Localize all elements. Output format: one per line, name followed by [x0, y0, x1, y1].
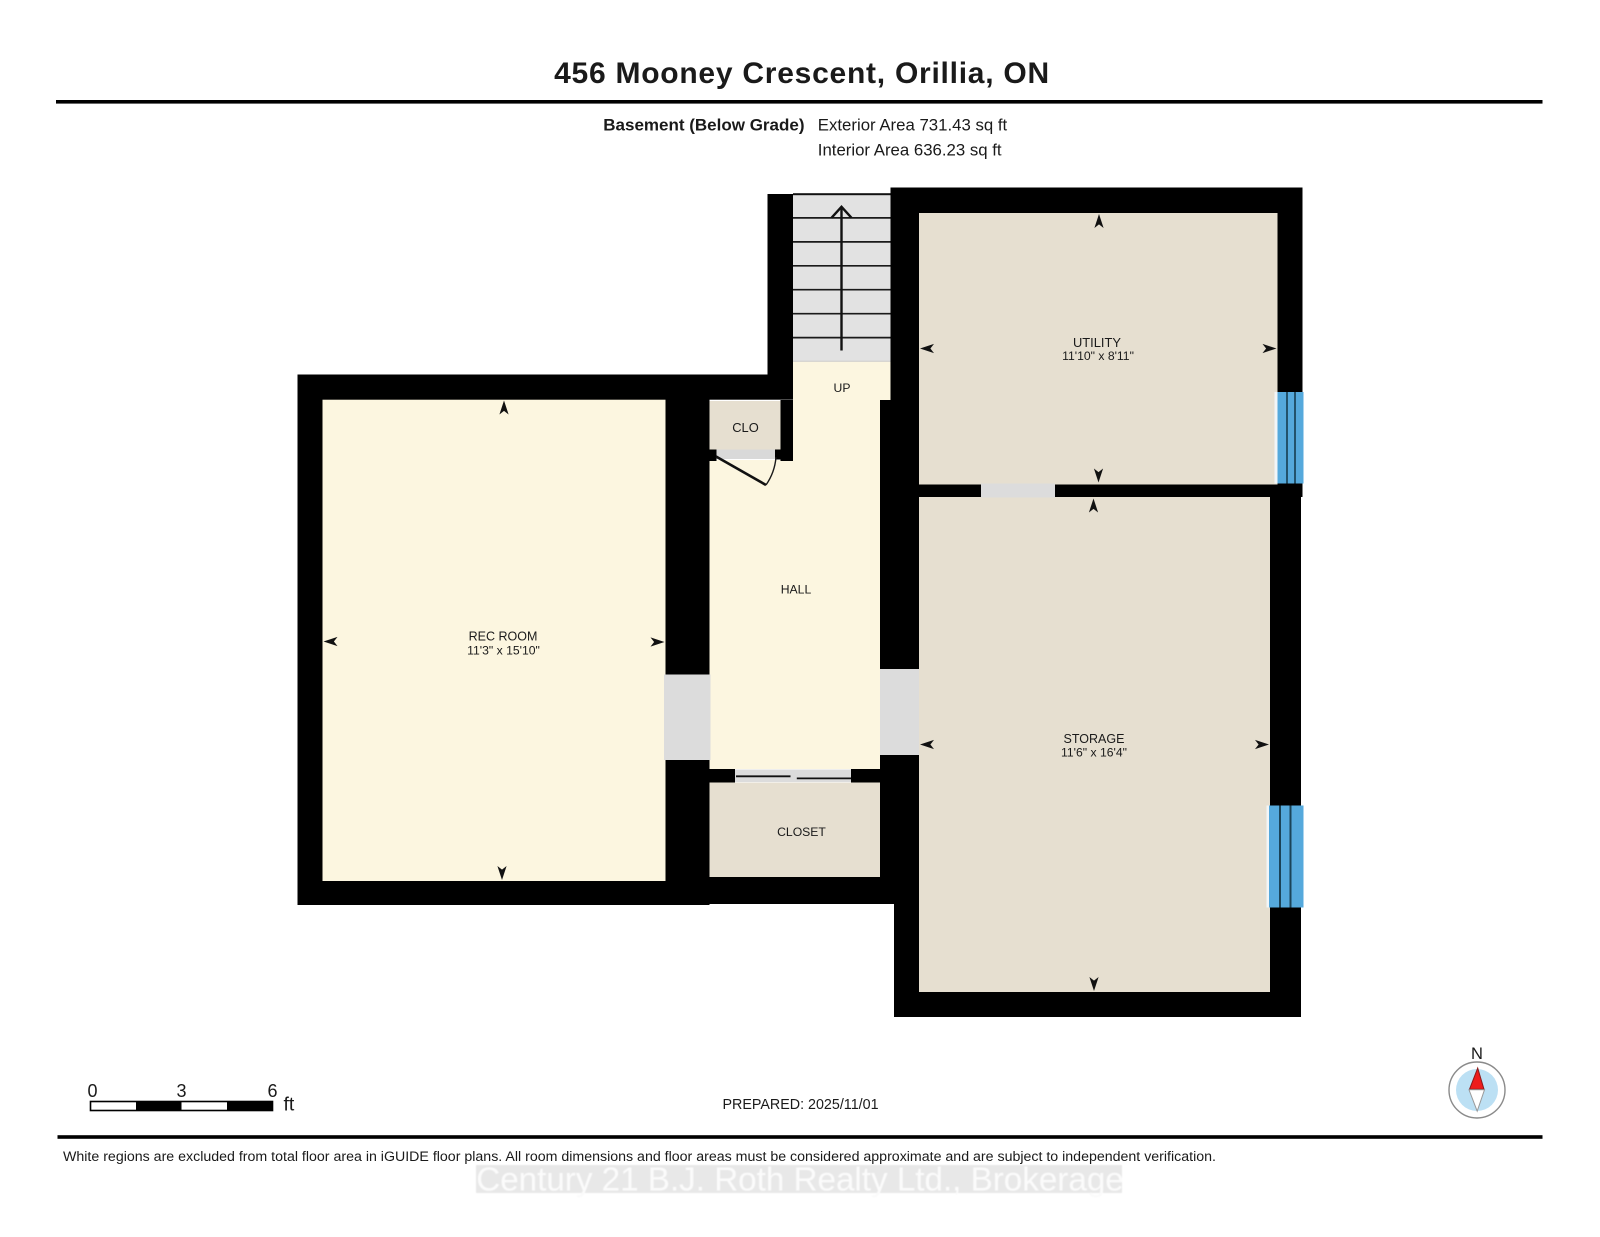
- svg-text:Century 21 B.J. Roth Realty Lt: Century 21 B.J. Roth Realty Ltd., Broker…: [476, 1162, 1123, 1199]
- svg-text:11'10" x 8'11": 11'10" x 8'11": [1062, 349, 1134, 363]
- svg-text:11'3" x 15'10": 11'3" x 15'10": [467, 643, 540, 657]
- svg-text:CLO: CLO: [732, 420, 759, 435]
- svg-text:11'6" x 16'4": 11'6" x 16'4": [1061, 746, 1127, 760]
- svg-text:UP: UP: [834, 381, 851, 395]
- svg-text:PREPARED: 2025/11/01: PREPARED: 2025/11/01: [722, 1097, 878, 1113]
- svg-text:REC ROOM: REC ROOM: [469, 630, 538, 644]
- svg-text:6: 6: [267, 1081, 277, 1101]
- svg-text:STORAGE: STORAGE: [1064, 732, 1125, 746]
- svg-text:0: 0: [87, 1081, 97, 1101]
- svg-text:Basement (Below Grade): Basement (Below Grade): [603, 116, 804, 135]
- svg-text:Exterior Area 731.43 sq ft: Exterior Area 731.43 sq ft: [818, 116, 1008, 135]
- svg-text:Interior Area 636.23 sq ft: Interior Area 636.23 sq ft: [818, 140, 1002, 159]
- svg-text:3: 3: [176, 1081, 186, 1101]
- svg-text:ft: ft: [284, 1094, 295, 1116]
- svg-text:CLOSET: CLOSET: [777, 825, 826, 839]
- svg-text:N: N: [1471, 1045, 1483, 1063]
- svg-text:UTILITY: UTILITY: [1073, 335, 1121, 350]
- svg-text:456 Mooney Crescent, Orillia,: 456 Mooney Crescent, Orillia, ON: [554, 57, 1050, 90]
- svg-text:HALL: HALL: [781, 583, 812, 597]
